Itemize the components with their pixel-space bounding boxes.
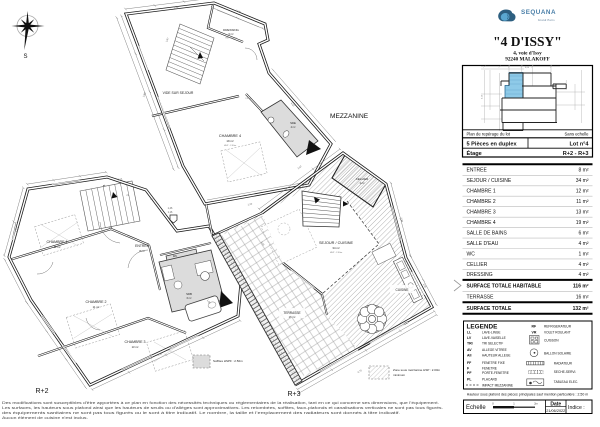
- svg-text:LAVE-VAISELLE: LAVE-VAISELLE: [482, 336, 506, 340]
- svg-text:AV: AV: [467, 348, 472, 352]
- svg-text:Plan de repérage du lot: Plan de repérage du lot: [467, 131, 511, 136]
- svg-text:WC: WC: [173, 254, 177, 258]
- svg-text:132 m²: 132 m²: [573, 306, 589, 312]
- svg-text:CELLIER: CELLIER: [467, 262, 488, 268]
- svg-text:Étage: Étage: [467, 149, 482, 157]
- svg-text:Soffites HSPF : 2.50m: Soffites HSPF : 2.50m: [213, 359, 243, 363]
- svg-text:des équipements sanitaires ne: des équipements sanitaires ne sont pas t…: [2, 411, 400, 415]
- svg-text:TRI: TRI: [467, 342, 473, 346]
- svg-text:6 m²: 6 m²: [579, 230, 589, 236]
- svg-text:ALLEGE VITREE: ALLEGE VITREE: [482, 348, 507, 352]
- svg-text:TERRASSE: TERRASSE: [283, 311, 300, 315]
- svg-text:REFRIGERATEUR: REFRIGERATEUR: [544, 324, 572, 328]
- svg-text:11 m²: 11 m²: [576, 199, 589, 205]
- svg-text:VOLET ROULANT: VOLET ROULANT: [544, 330, 571, 334]
- svg-text:1,16: 1,16: [168, 211, 173, 214]
- svg-text:4 m²: 4 m²: [291, 126, 296, 129]
- svg-text:PLACARD: PLACARD: [482, 377, 498, 381]
- svg-text:CHAMBRE 3: CHAMBRE 3: [125, 340, 146, 344]
- svg-text:Grand Paris: Grand Paris: [538, 19, 555, 22]
- svg-text:CHAMBRE 4: CHAMBRE 4: [467, 220, 496, 226]
- svg-text:34 m²: 34 m²: [576, 178, 589, 184]
- svg-text:13 m²: 13 m²: [576, 210, 589, 216]
- svg-text:LV: LV: [467, 336, 472, 340]
- svg-text:6 m²: 6 m²: [229, 33, 234, 36]
- svg-text:2,07m: 2,07m: [245, 98, 251, 100]
- svg-text:SDE: SDE: [290, 121, 296, 125]
- svg-text:Des modifications sont suscept: Des modifications sont susceptibles d'êt…: [2, 401, 439, 405]
- svg-text:2m: 2m: [534, 402, 538, 406]
- svg-text:TABLEAU ELEC.: TABLEAU ELEC.: [554, 380, 579, 384]
- svg-text:ENTREE: ENTREE: [467, 168, 488, 174]
- svg-text:CHAMBRE 1: CHAMBRE 1: [467, 189, 496, 195]
- svg-text:12 m²: 12 m²: [576, 189, 589, 195]
- svg-text:CUISINE: CUISINE: [396, 288, 409, 292]
- svg-text:34 m²: 34 m²: [332, 246, 339, 250]
- svg-text:13 m²: 13 m²: [132, 345, 139, 349]
- svg-text:16 m²: 16 m²: [576, 295, 589, 301]
- svg-text:4 m²: 4 m²: [579, 262, 589, 268]
- svg-text:CELLIER: CELLIER: [356, 177, 369, 181]
- svg-text:VR: VR: [532, 330, 537, 334]
- svg-text:4 m²: 4 m²: [579, 241, 589, 247]
- svg-text:ENTREE: ENTREE: [135, 244, 149, 248]
- svg-text:12 m²: 12 m²: [54, 245, 61, 249]
- svg-text:92240 MALAKOFF: 92240 MALAKOFF: [505, 57, 550, 63]
- svg-text:RADIATEUR: RADIATEUR: [554, 361, 573, 365]
- svg-text:Aucun élément de cuisine n'est: Aucun élément de cuisine n'est inclus.: [2, 416, 88, 420]
- svg-text:4 m²: 4 m²: [579, 272, 589, 278]
- svg-text:SURFACE TOTALE HABITABLE: SURFACE TOTALE HABITABLE: [467, 284, 542, 290]
- svg-text:1 m²: 1 m²: [579, 251, 589, 257]
- svg-text:minimum: minimum: [393, 373, 406, 377]
- svg-text:CHAMBRE 2: CHAMBRE 2: [86, 300, 107, 304]
- svg-text:SEJOUR / CUISINE: SEJOUR / CUISINE: [319, 241, 353, 245]
- svg-text:DRESSING: DRESSING: [223, 28, 239, 32]
- svg-text:HSP : 2.50m: HSP : 2.50m: [330, 252, 343, 254]
- svg-text:DRESSING: DRESSING: [467, 272, 493, 278]
- svg-text:FENETRE: FENETRE: [482, 366, 497, 370]
- svg-text:WC: WC: [467, 251, 476, 257]
- svg-text:BALLON SOLAIRE: BALLON SOLAIRE: [544, 352, 571, 356]
- svg-text:CUISSON: CUISSON: [544, 338, 559, 342]
- svg-text:8 m²: 8 m²: [139, 249, 144, 253]
- svg-text:19 m²: 19 m²: [226, 139, 233, 143]
- svg-text:1,46: 1,46: [168, 207, 173, 210]
- svg-text:Hauteur sous plafond des pièce: Hauteur sous plafond des pièces principa…: [467, 393, 588, 397]
- svg-text:Les surfaces, les hauteurs sou: Les surfaces, les hauteurs sous plafond …: [2, 406, 443, 410]
- svg-text:21/06/2022: 21/06/2022: [546, 409, 565, 413]
- svg-text:19 m²: 19 m²: [576, 220, 589, 226]
- svg-text:R+2 - R+3: R+2 - R+3: [563, 151, 589, 157]
- svg-text:R+2: R+2: [35, 388, 48, 395]
- svg-text:FENETRE FIXE: FENETRE FIXE: [482, 361, 505, 365]
- svg-text:116 m²: 116 m²: [573, 284, 589, 290]
- svg-text:Date: Date: [550, 401, 561, 407]
- svg-text:HAUTEUR ALLEGE: HAUTEUR ALLEGE: [482, 354, 511, 358]
- svg-text:16 m²: 16 m²: [289, 315, 296, 319]
- svg-text:HSP : 2.30m: HSP : 2.30m: [225, 38, 237, 40]
- svg-text:SEJOUR / CUISINE: SEJOUR / CUISINE: [467, 178, 512, 184]
- svg-text:SECHE-SERVI.: SECHE-SERVI.: [554, 370, 577, 374]
- svg-text:LAVE-LINGE: LAVE-LINGE: [482, 330, 501, 334]
- svg-text:CHAMBRE 2: CHAMBRE 2: [467, 199, 496, 205]
- svg-text:6 m²: 6 m²: [187, 297, 192, 300]
- svg-text:LEGENDE: LEGENDE: [467, 323, 499, 330]
- svg-text:SALLE D'EAU: SALLE D'EAU: [467, 241, 499, 247]
- svg-text:TERRASSE: TERRASSE: [467, 295, 495, 301]
- svg-text:CHAMBRE 4: CHAMBRE 4: [219, 134, 241, 138]
- svg-text:S: S: [24, 54, 28, 60]
- svg-text:VIDE SUR SEJOUR: VIDE SUR SEJOUR: [163, 91, 194, 95]
- svg-text:HSP : 2.50m: HSP : 2.50m: [224, 145, 237, 147]
- svg-text:Indice :: Indice :: [568, 405, 585, 411]
- svg-text:SALLE DE BAINS: SALLE DE BAINS: [467, 230, 508, 236]
- svg-text:Zone sous mézzanine HSP : 2.00: Zone sous mézzanine HSP : 2.00m: [393, 368, 441, 372]
- svg-text:MEZZANINE: MEZZANINE: [330, 113, 369, 120]
- svg-text:"4 D'ISSY": "4 D'ISSY": [493, 34, 562, 49]
- svg-text:PORTE-FENETRE: PORTE-FENETRE: [482, 371, 509, 375]
- svg-text:AIl: AIl: [467, 354, 472, 358]
- svg-text:CHAMBRE 1: CHAMBRE 1: [47, 240, 68, 244]
- svg-text:CHAMBRE 3: CHAMBRE 3: [467, 210, 496, 216]
- svg-text:SDB: SDB: [186, 292, 192, 296]
- svg-text:Sans echelle: Sans echelle: [565, 131, 590, 136]
- svg-text:8 m²: 8 m²: [579, 168, 589, 174]
- svg-text:SEQUANA: SEQUANA: [521, 9, 556, 16]
- svg-text:Lot n°4: Lot n°4: [569, 142, 589, 148]
- svg-text:5 Pièces en duplex: 5 Pièces en duplex: [467, 142, 518, 148]
- svg-text:SURFACE TOTALE: SURFACE TOTALE: [467, 306, 512, 312]
- svg-text:11 m²: 11 m²: [93, 305, 100, 309]
- svg-text:4 m²: 4 m²: [360, 182, 365, 185]
- svg-text:R+3: R+3: [287, 391, 300, 398]
- svg-text:IMPACT MEZZANINE: IMPACT MEZZANINE: [482, 383, 513, 387]
- svg-text:Echelle: Echelle: [466, 405, 486, 411]
- svg-text:TRI SELECTIF: TRI SELECTIF: [482, 342, 503, 346]
